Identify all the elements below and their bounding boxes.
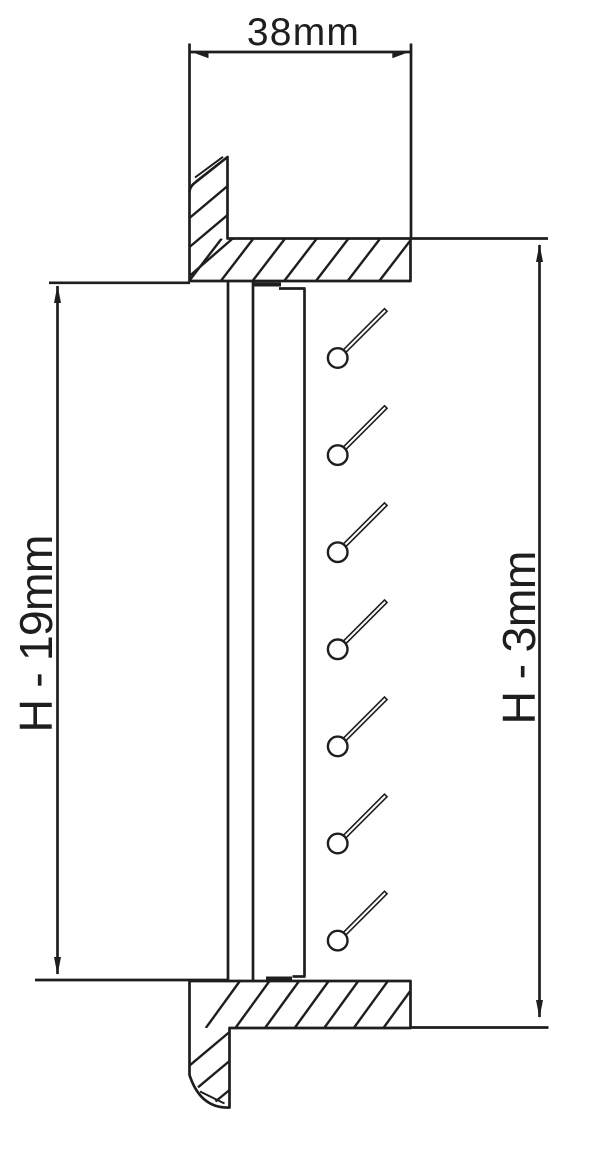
svg-text:H - 3mm: H - 3mm <box>493 551 545 725</box>
svg-text:H - 19mm: H - 19mm <box>10 535 62 733</box>
svg-text:38mm: 38mm <box>247 11 360 54</box>
